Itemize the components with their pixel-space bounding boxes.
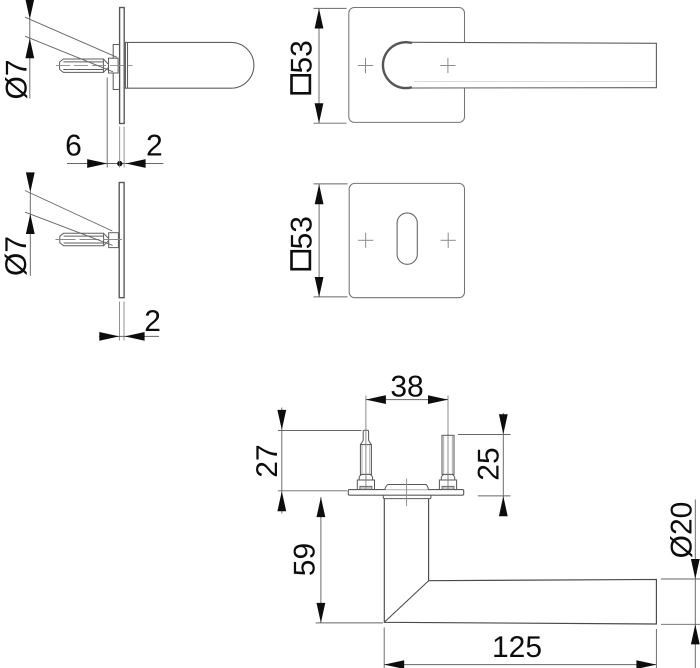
svg-text:53: 53: [286, 40, 319, 73]
svg-text:Ø7: Ø7: [1, 59, 34, 99]
svg-text:2: 2: [146, 130, 163, 163]
svg-text:27: 27: [251, 444, 284, 477]
svg-text:2: 2: [144, 305, 161, 338]
svg-text:125: 125: [492, 631, 542, 664]
svg-text:38: 38: [390, 370, 423, 403]
svg-text:59: 59: [289, 543, 322, 576]
svg-text:Ø7: Ø7: [0, 236, 33, 276]
svg-text:Ø20: Ø20: [666, 502, 699, 559]
svg-text:25: 25: [473, 447, 506, 480]
svg-text:6: 6: [65, 130, 82, 163]
svg-text:53: 53: [286, 216, 319, 249]
